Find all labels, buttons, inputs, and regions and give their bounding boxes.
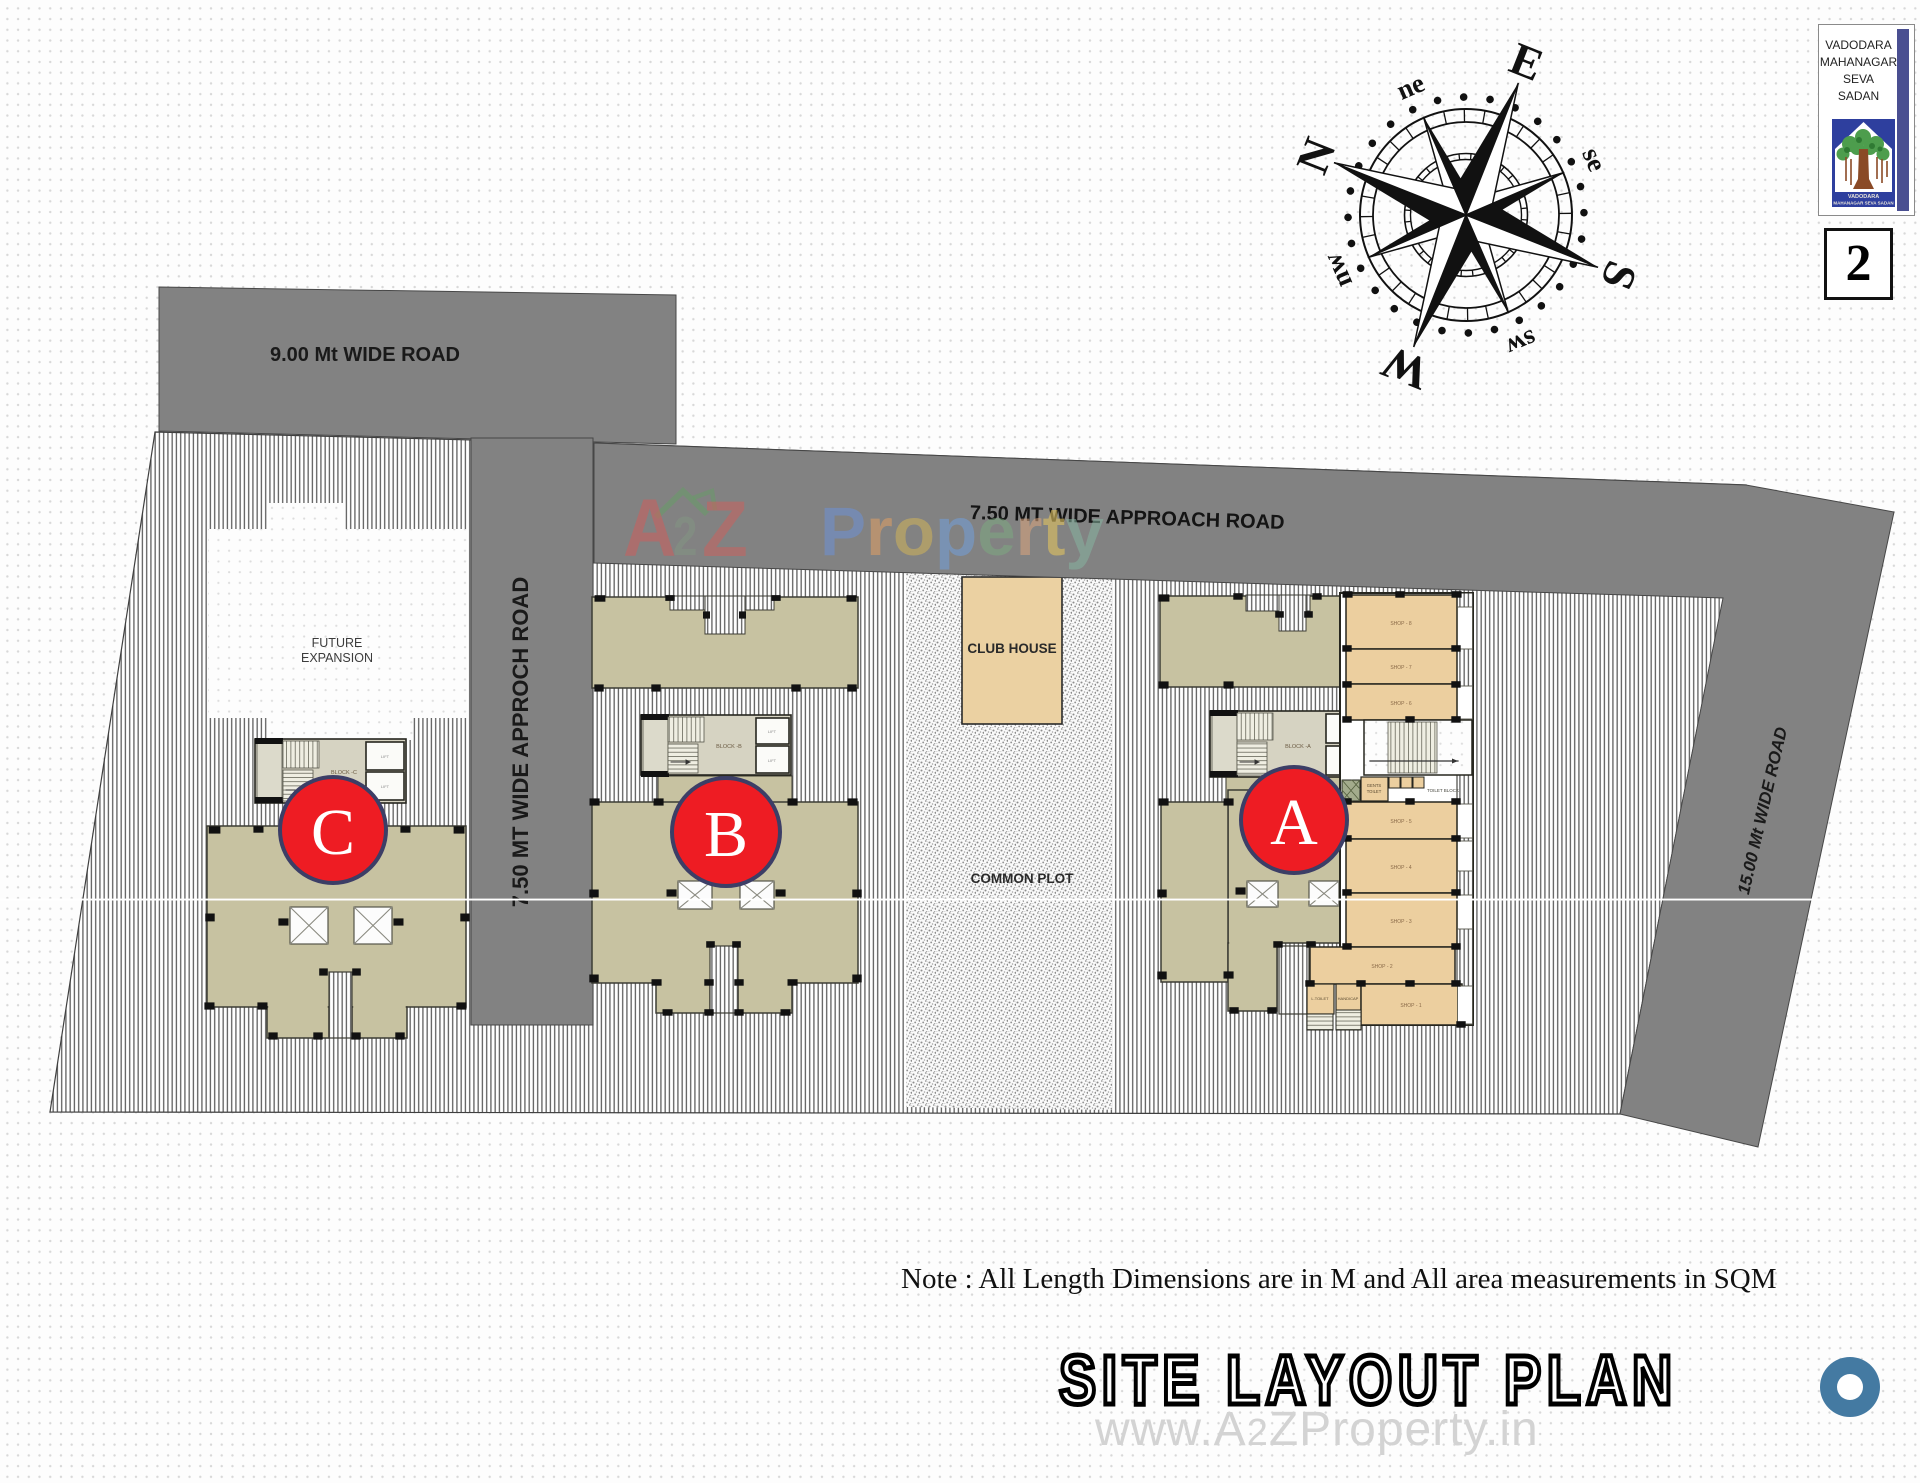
- svg-text:LIFT: LIFT: [381, 784, 390, 789]
- svg-text:9.00 Mt WIDE ROAD: 9.00 Mt WIDE ROAD: [270, 344, 460, 366]
- svg-text:HANDICAP: HANDICAP: [1338, 996, 1359, 1001]
- svg-text:FUTURE: FUTURE: [312, 636, 363, 650]
- svg-text:nw: nw: [1317, 248, 1358, 292]
- svg-text:B: B: [704, 798, 748, 871]
- svg-text:LIFT: LIFT: [381, 754, 390, 759]
- svg-text:BLOCK -A: BLOCK -A: [1285, 744, 1311, 750]
- svg-text:TOILET BLOCK: TOILET BLOCK: [1427, 788, 1459, 793]
- svg-text:BLOCK -B: BLOCK -B: [716, 744, 742, 750]
- svg-text:C: C: [311, 796, 355, 869]
- svg-text:SHOP - 6: SHOP - 6: [1390, 701, 1412, 707]
- svg-text:SHOP - 5: SHOP - 5: [1390, 819, 1412, 825]
- svg-text:GENTS: GENTS: [1367, 783, 1382, 788]
- svg-text:SHOP - 4: SHOP - 4: [1390, 865, 1412, 871]
- svg-text:CLUB HOUSE: CLUB HOUSE: [967, 641, 1056, 656]
- svg-text:VADODARA: VADODARA: [1848, 194, 1879, 200]
- svg-text:SHOP - 3: SHOP - 3: [1390, 919, 1412, 925]
- svg-text:ne: ne: [1392, 67, 1429, 105]
- svg-text:TOILET: TOILET: [1367, 789, 1382, 794]
- svg-text:2: 2: [673, 505, 697, 567]
- svg-text:se: se: [1576, 143, 1612, 176]
- svg-text:7.50 MT WIDE APPROCH ROAD: 7.50 MT WIDE APPROCH ROAD: [508, 577, 533, 907]
- svg-text:Property: Property: [820, 493, 1104, 570]
- svg-text:EXPANSION: EXPANSION: [301, 651, 373, 665]
- svg-text:Z: Z: [702, 485, 748, 573]
- svg-text:COMMON PLOT: COMMON PLOT: [971, 871, 1074, 886]
- svg-text:SHOP - 2: SHOP - 2: [1371, 964, 1393, 970]
- svg-text:A: A: [1270, 786, 1318, 859]
- svg-text:LIFT: LIFT: [768, 729, 777, 734]
- svg-text:SHOP - 1: SHOP - 1: [1400, 1003, 1422, 1009]
- svg-text:SHOP - 8: SHOP - 8: [1390, 621, 1412, 627]
- svg-text:LIFT: LIFT: [768, 758, 777, 763]
- svg-text:MAHANAGAR SEVA SADAN: MAHANAGAR SEVA SADAN: [1833, 201, 1893, 206]
- svg-text:S: S: [1591, 254, 1648, 297]
- svg-text:E: E: [1503, 32, 1550, 91]
- svg-text:sw: sw: [1501, 324, 1541, 364]
- svg-text:W: W: [1375, 336, 1437, 400]
- svg-text:A: A: [623, 481, 676, 574]
- svg-text:L.TOILET: L.TOILET: [1311, 996, 1329, 1001]
- svg-text:N: N: [1286, 131, 1346, 181]
- svg-text:SHOP - 7: SHOP - 7: [1390, 665, 1412, 671]
